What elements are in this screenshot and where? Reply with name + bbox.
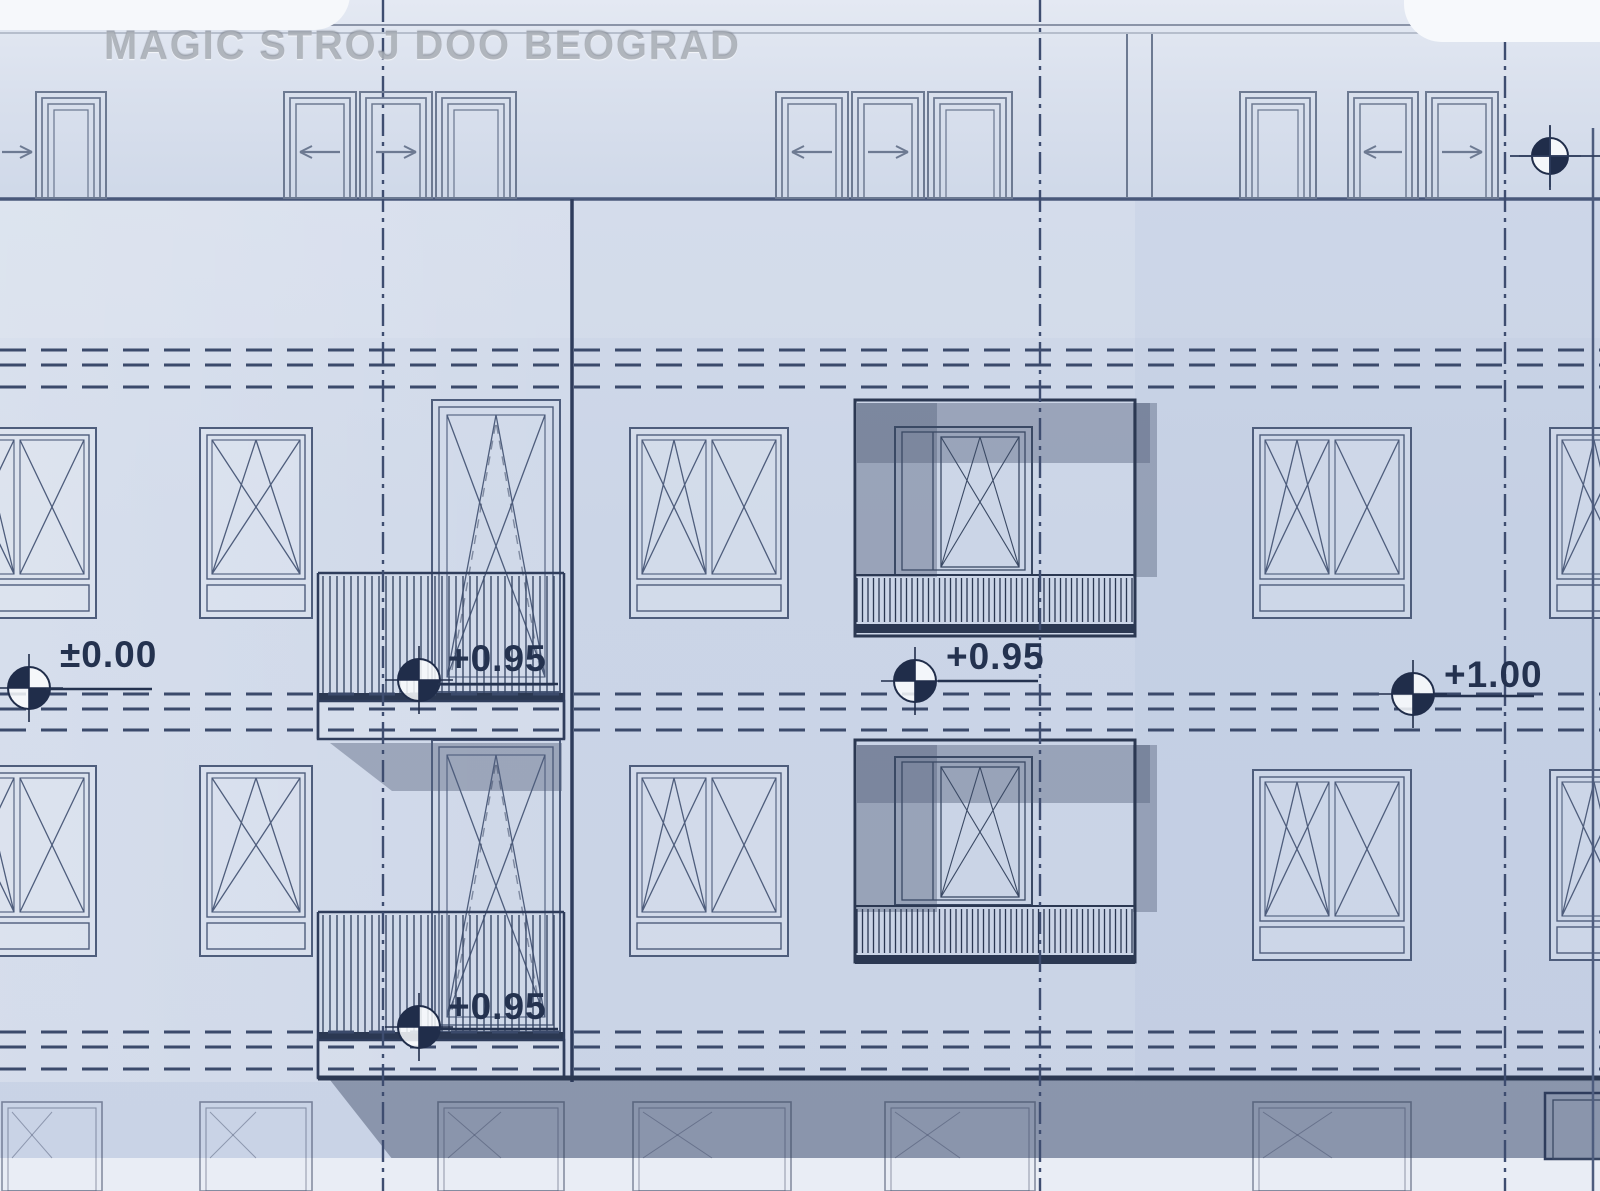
elevation-label-right: +1.00 bbox=[1444, 656, 1543, 693]
page-corner-top-right bbox=[1404, 0, 1600, 42]
windows bbox=[0, 400, 1600, 1032]
door-plan-symbols bbox=[2, 92, 1498, 198]
drawing-linework bbox=[0, 0, 1600, 1191]
elevation-label-balcony-upper: +0.95 bbox=[448, 640, 547, 677]
survey-benchmark-icon bbox=[1379, 660, 1447, 728]
page-corner-top-left bbox=[0, 0, 350, 30]
elevation-label-origin: ±0.00 bbox=[60, 636, 157, 673]
elevation-label-balcony-lower: +0.95 bbox=[448, 988, 547, 1025]
elevation-label-loggia: +0.95 bbox=[946, 638, 1045, 675]
building-elevation-drawing: MAGIC STROJ DOO BEOGRAD ±0.00 +0.95 +0.9… bbox=[0, 0, 1600, 1191]
